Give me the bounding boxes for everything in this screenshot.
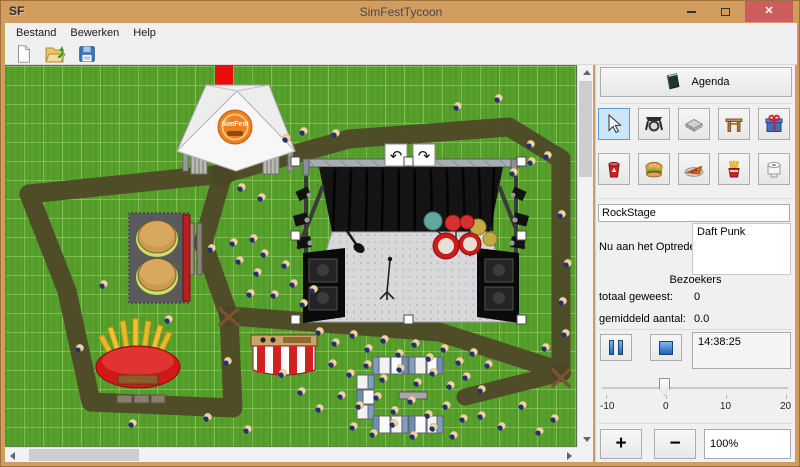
tick-minus10: -10: [600, 401, 614, 412]
slider-track: [602, 387, 788, 389]
menu-bewerken[interactable]: Bewerken: [63, 24, 126, 42]
visitor: [369, 429, 378, 438]
visitor: [469, 348, 478, 357]
scroll-left-icon[interactable]: [10, 452, 15, 460]
trashcan-icon: [603, 158, 625, 180]
visitor: [257, 193, 266, 202]
visitor: [328, 359, 337, 368]
visitor: [411, 339, 420, 348]
visitor: [563, 259, 572, 268]
tick-0: 0: [663, 401, 669, 412]
visitor: [413, 378, 422, 387]
horizontal-scroll-thumb[interactable]: [29, 449, 139, 461]
zoom-in-button[interactable]: +: [600, 429, 642, 459]
visitor: [355, 401, 364, 410]
sidebar: Agenda: [595, 65, 795, 462]
scroll-up-icon[interactable]: [583, 70, 591, 75]
vertical-scroll-thumb[interactable]: [579, 81, 592, 177]
visitor: [235, 256, 244, 265]
visitor: [207, 244, 216, 253]
visitor: [429, 368, 438, 377]
tool-toilet[interactable]: [758, 153, 790, 185]
gift-icon: [763, 113, 785, 135]
visitor: [409, 431, 418, 440]
save-button[interactable]: [75, 43, 99, 65]
visitor: [249, 234, 258, 243]
visitor: [518, 401, 527, 410]
visitor: [128, 419, 137, 428]
visitor: [282, 134, 291, 143]
visitor: [429, 423, 438, 432]
visitor: [349, 330, 358, 339]
scroll-down-icon[interactable]: [583, 437, 591, 442]
visitor: [550, 414, 559, 423]
visitor: [373, 392, 382, 401]
visitor: [75, 344, 84, 353]
visitor: [558, 297, 567, 306]
save-icon: [77, 44, 97, 64]
visitor: [299, 127, 308, 136]
tool-pizza-stand[interactable]: [678, 153, 710, 185]
festival-map-canvas[interactable]: SimFest: [5, 65, 577, 447]
menubar: Bestand Bewerken Help: [5, 23, 163, 43]
visitor: [440, 344, 449, 353]
visitor: [315, 327, 324, 336]
tool-spotlight[interactable]: [638, 108, 670, 140]
cursor-icon: [603, 113, 625, 135]
visitor: [389, 419, 398, 428]
visitor: [477, 411, 486, 420]
visitor: [497, 422, 506, 431]
visitor: [509, 168, 518, 177]
visitor: [346, 369, 355, 378]
zoom-level-field[interactable]: 100%: [704, 429, 791, 459]
visitor: [462, 372, 471, 381]
visitor: [395, 349, 404, 358]
zoom-out-button[interactable]: −: [654, 429, 696, 459]
visitor: [455, 357, 464, 366]
visitor: [543, 151, 552, 160]
tick-20: 20: [780, 401, 791, 412]
tool-gate[interactable]: [718, 108, 750, 140]
open-file-icon: [44, 43, 66, 65]
visitor: [164, 315, 173, 324]
visitor: [561, 329, 570, 338]
visitor: [253, 268, 262, 277]
minimize-button[interactable]: [677, 1, 705, 22]
visitor: [99, 280, 108, 289]
visitor: [477, 385, 486, 394]
burger-icon: [643, 158, 665, 180]
pizza-icon: [683, 158, 705, 180]
app-window: SF SimFestTycoon ✕ Bestand Bewerken Help: [0, 0, 800, 467]
visitor: [229, 238, 238, 247]
visitors-header: Bezoekers: [596, 274, 795, 286]
visitor: [446, 381, 455, 390]
visitor: [494, 94, 503, 103]
average-visitors-label: gemiddeld aantal:: [599, 313, 686, 325]
agenda-book-icon: [663, 72, 683, 92]
zoom-level-value: 100%: [710, 438, 738, 450]
visitor: [299, 299, 308, 308]
speed-slider[interactable]: -10 0 10 20: [600, 375, 790, 421]
clock-display: 14:38:25: [692, 332, 791, 369]
visitor: [527, 157, 536, 166]
visitor: [237, 183, 246, 192]
horizontal-scrollbar[interactable]: [5, 447, 577, 462]
maximize-button[interactable]: [711, 1, 739, 22]
visitor: [289, 279, 298, 288]
close-button[interactable]: ✕: [745, 1, 793, 22]
visitor: [349, 422, 358, 431]
visitor: [453, 102, 462, 111]
agenda-button[interactable]: Agenda: [600, 67, 792, 97]
visitor: [449, 431, 458, 440]
toolbar: [7, 43, 99, 65]
tick-10: 10: [720, 401, 731, 412]
gate-icon: [723, 113, 745, 135]
visitor: [541, 343, 550, 352]
visitor: [281, 260, 290, 269]
visitor: [278, 369, 287, 378]
menu-toolbar-area: Bestand Bewerken Help: [5, 23, 797, 65]
visitor: [297, 387, 306, 396]
tool-trashcan[interactable]: [598, 153, 630, 185]
tool-stage-platform[interactable]: [678, 108, 710, 140]
visitor: [380, 335, 389, 344]
vertical-scrollbar[interactable]: [577, 65, 593, 447]
visitor: [379, 374, 388, 383]
stage-platform-icon: [683, 113, 705, 135]
visitor: [390, 406, 399, 415]
visitor: [331, 338, 340, 347]
new-file-icon: [13, 44, 33, 64]
stop-button[interactable]: [650, 334, 682, 361]
total-visitors-value: 0: [694, 291, 700, 303]
visitor: [459, 414, 468, 423]
visitor: [243, 425, 252, 434]
tool-burger-stand[interactable]: [638, 153, 670, 185]
visitor: [424, 410, 433, 419]
visitor: [535, 427, 544, 436]
visitor: [442, 401, 451, 410]
agenda-label: Agenda: [692, 76, 730, 88]
pause-icon: [609, 340, 614, 355]
now-performing-label: Nu aan het Optreden:: [599, 241, 705, 253]
clock-value: 14:38:25: [698, 336, 741, 348]
visitor: [203, 413, 212, 422]
toilet-roll-icon: [763, 158, 785, 180]
pause-button[interactable]: [600, 334, 632, 361]
visitors-layer: [5, 65, 577, 447]
total-visitors-label: totaal geweest:: [599, 291, 673, 303]
maximize-icon: [721, 8, 730, 16]
visitor: [526, 140, 535, 149]
visitor: [223, 357, 232, 366]
visitor: [484, 360, 493, 369]
visitor: [309, 285, 318, 294]
slider-thumb[interactable]: [659, 378, 670, 396]
scroll-right-icon[interactable]: [567, 452, 572, 460]
visitor: [396, 364, 405, 373]
scrollbar-corner: [577, 447, 593, 462]
average-visitors-value: 0.0: [694, 313, 709, 325]
visitor: [246, 289, 255, 298]
visitor: [425, 353, 434, 362]
titlebar: SF SimFestTycoon ✕: [1, 1, 800, 23]
minimize-icon: [687, 11, 696, 13]
open-file-button[interactable]: [43, 43, 67, 65]
tool-fries-stand[interactable]: [718, 153, 750, 185]
menu-help[interactable]: Help: [126, 24, 163, 42]
visitor: [260, 249, 269, 258]
menu-bestand[interactable]: Bestand: [9, 24, 63, 42]
visitor: [337, 391, 346, 400]
stage-name-input[interactable]: [598, 204, 790, 222]
now-performing-box: Daft Punk: [692, 223, 791, 275]
tool-gift-shop[interactable]: [758, 108, 790, 140]
visitor: [364, 344, 373, 353]
spotlight-icon: [643, 113, 665, 135]
visitor: [270, 290, 279, 299]
visitor: [407, 396, 416, 405]
now-performing-value: Daft Punk: [697, 226, 745, 238]
close-icon: ✕: [764, 6, 773, 17]
visitor: [315, 404, 324, 413]
visitor: [331, 129, 340, 138]
stop-icon: [659, 341, 673, 355]
tool-select-cursor[interactable]: [598, 108, 630, 140]
new-file-button[interactable]: [11, 43, 35, 65]
visitor: [363, 360, 372, 369]
fries-icon: [723, 158, 745, 180]
visitor: [557, 210, 566, 219]
